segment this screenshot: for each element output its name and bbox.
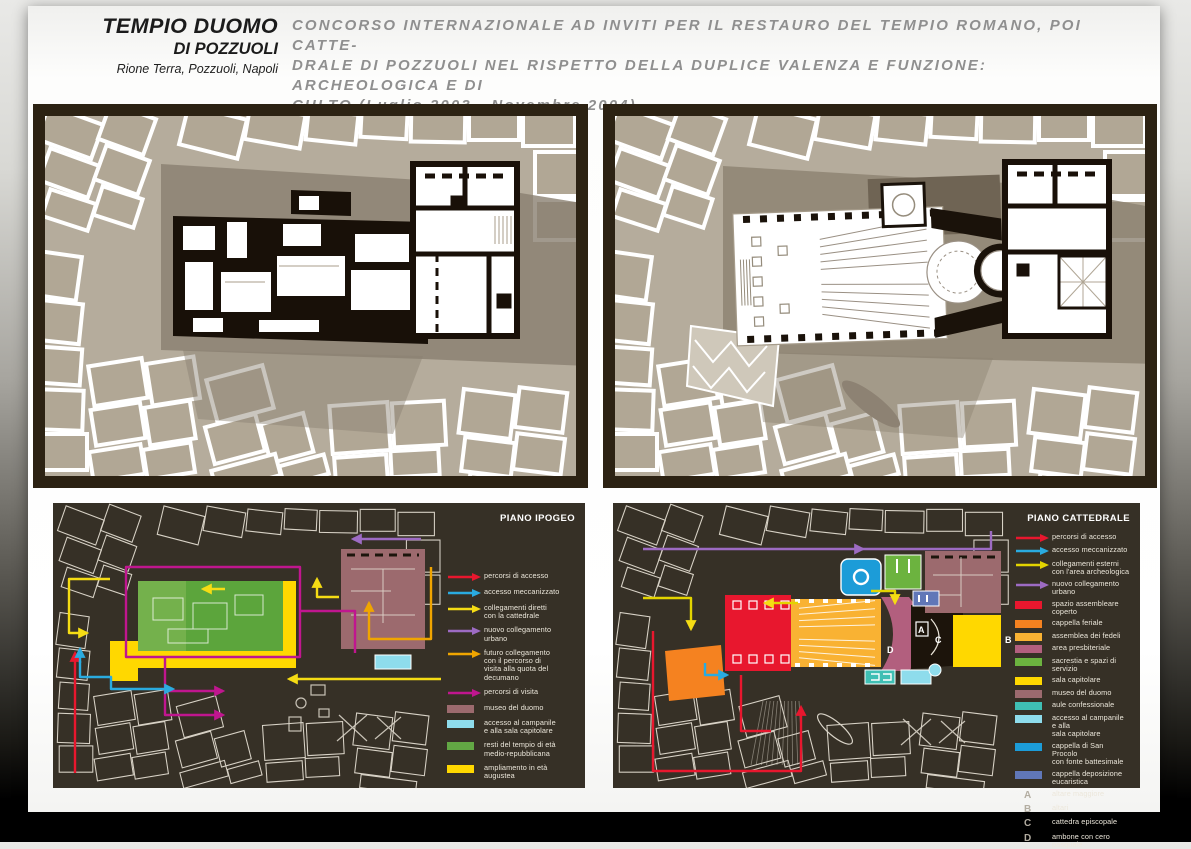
legend-label: nuovo collegamento urbano <box>484 626 551 642</box>
legend-item: assemblea dei fedeli <box>1015 632 1130 641</box>
city-block <box>1029 389 1086 439</box>
area-accesso-campanile <box>901 670 931 684</box>
city-block <box>39 434 87 470</box>
area-cappella-san-procolo <box>841 559 881 595</box>
competition-description: CONCORSO INTERNAZIONALE AD INVITI PER IL… <box>292 14 1134 116</box>
description-line: CONCORSO INTERNAZIONALE AD INVITI PER IL… <box>292 16 1134 56</box>
city-block <box>88 358 148 406</box>
legend-label: assemblea dei fedeli <box>1052 632 1121 640</box>
page-title: TEMPIO DUOMO <box>86 14 278 39</box>
legend-swatch-key <box>1015 714 1052 723</box>
legend-swatch-key <box>1015 632 1052 641</box>
legend-item: percorsi di accesso <box>1015 533 1130 543</box>
legend-label: cappella feriale <box>1052 619 1103 627</box>
legend-item: percorsi di accesso <box>447 572 575 582</box>
legend-item: Aaltare maggiore <box>1015 790 1130 801</box>
legend-swatch-key <box>1015 742 1052 751</box>
legend-arrow-key <box>447 688 484 698</box>
legend-swatch-key <box>1015 600 1052 609</box>
legend-swatch-key <box>447 719 484 728</box>
legend-arrow-key <box>1015 580 1052 590</box>
city-block <box>90 402 145 445</box>
color-swatch <box>1015 690 1042 698</box>
legend-item: Baltari <box>1015 804 1130 815</box>
city-block <box>1083 433 1135 475</box>
site-plan-cathedral-drawing <box>603 104 1157 488</box>
legend-item: cappella feriale <box>1015 619 1130 628</box>
description-line: DRALE DI POZZUOLI NEL RISPETTO DELLA DUP… <box>292 56 1134 96</box>
header: TEMPIO DUOMO DI POZZUOLI Rione Terra, Po… <box>86 14 1134 116</box>
legend-item: cappella deposizione eucaristica <box>1015 770 1130 786</box>
area-accesso-campanile <box>375 655 411 669</box>
legend-item: accesso meccanizzato <box>1015 546 1130 556</box>
legend-letter-key: B <box>1015 804 1052 815</box>
plan-letter-altare-maggiore: A <box>918 625 925 635</box>
city-block <box>143 442 195 479</box>
legend-label: percorsi di visita <box>484 688 538 696</box>
city-block <box>461 437 515 477</box>
legend-letter-key: D <box>1015 833 1052 844</box>
panel-piano-ipogeo: PIANO IPOGEO percorsi di accessoaccesso … <box>53 503 585 788</box>
legend-item: sacrestia e spazi di servizio <box>1015 657 1130 673</box>
city-block <box>960 449 1009 477</box>
legend-label: cattedra episcopale <box>1052 818 1117 826</box>
legend-item: resti del tempio di età medio-repubblica… <box>447 741 575 757</box>
area-sacrestia <box>885 555 921 589</box>
legend-item: aule confessionale <box>1015 701 1130 710</box>
city-block <box>515 387 568 433</box>
legend-item: spazio assembleare coperto <box>1015 600 1130 616</box>
city-block <box>1085 387 1138 433</box>
city-block <box>390 449 439 477</box>
legend-item: accesso al campanile e alla sala capitol… <box>1015 714 1130 739</box>
annex-footprint <box>1005 162 1109 336</box>
legend-swatch-key <box>447 741 484 750</box>
legend-item: cappella di San Procolo con fonte battes… <box>1015 742 1130 767</box>
legend-item: collegamenti diretti con la cattedrale <box>447 604 575 620</box>
legend-label: museo del duomo <box>484 704 544 712</box>
legend-arrow-key <box>447 626 484 636</box>
legend-title: PIANO CATTEDRALE <box>1015 513 1130 524</box>
legend-label: accesso al campanile e alla sala capitol… <box>1052 714 1130 739</box>
legend-item: accesso meccanizzato <box>447 588 575 598</box>
color-swatch <box>1015 771 1042 779</box>
legend-label: collegamenti diretti con la cattedrale <box>484 604 547 620</box>
legend-label: collegamenti esterni con l'area archeolo… <box>1052 560 1129 576</box>
legend-swatch-key <box>1015 701 1052 710</box>
site-plan-cathedral <box>603 104 1157 488</box>
title-block: TEMPIO DUOMO DI POZZUOLI Rione Terra, Po… <box>86 14 278 76</box>
legend-item: ampliamento in età augustea <box>447 764 575 780</box>
legend-label: sacrestia e spazi di servizio <box>1052 657 1130 673</box>
city-block <box>411 112 466 143</box>
legend-item: area presbiteriale <box>1015 644 1130 653</box>
color-swatch <box>447 705 474 713</box>
city-block <box>144 401 195 446</box>
legend-label: resti del tempio di età medio-repubblica… <box>484 741 556 757</box>
legend-arrow-key <box>447 604 484 614</box>
legend-label: cappella deposizione eucaristica <box>1052 770 1122 786</box>
legend-swatch-key <box>1015 644 1052 653</box>
legend-item: museo del duomo <box>447 704 575 713</box>
legend-item: percorsi di visita <box>447 688 575 698</box>
legend-piano-cattedrale: PIANO CATTEDRALE percorsi di accessoacce… <box>1013 503 1140 788</box>
annex-footprint <box>413 164 517 336</box>
legend-swatch-key <box>1015 619 1052 628</box>
legend-label: percorsi di accesso <box>484 572 548 580</box>
color-swatch <box>447 765 474 773</box>
legend-swatch-key <box>447 704 484 713</box>
legend-item: Ccattedra episcopale <box>1015 818 1130 829</box>
legend-item: accesso al campanile e alla sala capitol… <box>447 719 575 735</box>
legend-label: aule confessionale <box>1052 701 1114 709</box>
legend-label: altare maggiore <box>1052 790 1104 798</box>
legend-item: sala capitolare <box>1015 676 1130 685</box>
plan-letter-cattedra: C <box>935 635 942 645</box>
presentation-board: TEMPIO DUOMO DI POZZUOLI Rione Terra, Po… <box>28 6 1160 812</box>
legend-item: nuovo collegamento urbano <box>1015 580 1130 596</box>
legend-label: accesso meccanizzato <box>484 588 559 596</box>
legend-item: collegamenti esterni con l'area archeolo… <box>1015 560 1130 576</box>
legend-label: nuovo collegamento urbano <box>1052 580 1130 596</box>
color-swatch <box>1015 658 1042 666</box>
legend-item: museo del duomo <box>1015 689 1130 698</box>
panel-piano-cattedrale: A B C D PIANO CATTEDRALE percorsi di acc… <box>613 503 1140 788</box>
color-swatch <box>1015 601 1042 609</box>
page-title-line2: DI POZZUOLI <box>86 40 278 59</box>
legend-label: futuro collegamento con il percorso di v… <box>484 649 550 682</box>
color-swatch <box>1015 715 1042 723</box>
color-swatch <box>1015 743 1042 751</box>
legend-item: nuovo collegamento urbano <box>447 626 575 642</box>
legend-label: museo del duomo <box>1052 689 1112 697</box>
city-block <box>1093 114 1145 146</box>
legend-item: Dambone con cero pasquale <box>1015 833 1130 849</box>
legend-label: sala capitolare <box>1052 676 1101 684</box>
site-plan-archaeological-drawing <box>33 104 588 488</box>
legend-arrow-key <box>1015 546 1052 556</box>
legend-swatch-key <box>1015 770 1052 779</box>
legend-letter-key: C <box>1015 818 1052 829</box>
legend-label: spazio assembleare coperto <box>1052 600 1130 616</box>
color-swatch <box>1015 677 1042 685</box>
color-swatch <box>447 742 474 750</box>
city-block <box>513 433 565 475</box>
legend-letter-key: A <box>1015 790 1052 801</box>
city-block <box>981 112 1036 143</box>
legend-arrow-key <box>447 588 484 598</box>
legend-swatch-key <box>1015 676 1052 685</box>
legend-label: altari <box>1052 804 1068 812</box>
legend-label: cappella di San Procolo con fonte battes… <box>1052 742 1130 767</box>
legend-label: ampliamento in età augustea <box>484 764 547 780</box>
legend-swatch-key <box>447 764 484 773</box>
city-block <box>609 434 657 470</box>
plan-letter-altari: B <box>1005 635 1012 645</box>
color-swatch <box>447 720 474 728</box>
city-block <box>459 389 516 439</box>
site-plan-archaeological <box>33 104 588 488</box>
legend-label: ambone con cero pasquale <box>1052 833 1130 849</box>
city-block <box>713 442 765 479</box>
legend-swatch-key <box>1015 657 1052 666</box>
area-sala-capitolare <box>953 615 1001 667</box>
legend-title: PIANO IPOGEO <box>447 513 575 524</box>
legend-piano-ipogeo: PIANO IPOGEO percorsi di accessoaccesso … <box>445 503 585 788</box>
piano-cattedrale-plan: A B C D <box>613 503 1013 788</box>
color-swatch <box>1015 633 1042 641</box>
legend-arrow-key <box>1015 533 1052 543</box>
legend-arrow-key <box>447 649 484 659</box>
area-cappella-feriale <box>665 645 725 701</box>
piano-ipogeo-plan <box>53 503 445 788</box>
legend-label: area presbiteriale <box>1052 644 1110 652</box>
legend-swatch-key <box>1015 689 1052 698</box>
legend-arrow-key <box>1015 560 1052 570</box>
color-swatch <box>1015 702 1042 710</box>
legend-label: percorsi di accesso <box>1052 533 1116 541</box>
city-block <box>1031 437 1085 477</box>
color-swatch <box>1015 645 1042 653</box>
plan-letter-ambone: D <box>887 645 894 655</box>
legend-label: accesso meccanizzato <box>1052 546 1127 554</box>
legend-label: accesso al campanile e alla sala capitol… <box>484 719 556 735</box>
city-block <box>714 401 765 446</box>
color-swatch <box>1015 620 1042 628</box>
page-subtitle: Rione Terra, Pozzuoli, Napoli <box>86 62 278 76</box>
legend-arrow-key <box>447 572 484 582</box>
legend-item: futuro collegamento con il percorso di v… <box>447 649 575 682</box>
city-block <box>535 152 583 196</box>
city-block <box>523 114 575 146</box>
city-block <box>660 402 715 445</box>
